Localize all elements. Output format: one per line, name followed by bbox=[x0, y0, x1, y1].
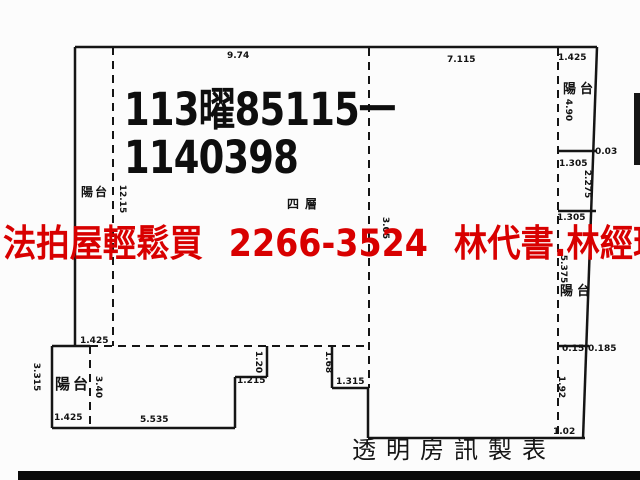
dim-top-width-left: 9.74 bbox=[227, 51, 249, 61]
dim-notch2-width: 1.315 bbox=[336, 377, 364, 387]
floor-level-label: 四層 bbox=[287, 195, 323, 212]
dim-right-offset-top: 0.03 bbox=[595, 147, 617, 157]
dim-bottom-width: 5.535 bbox=[140, 415, 168, 425]
room-bottom-left-balcony: 陽台 bbox=[55, 373, 91, 394]
dim-bl-inner-height: 3.40 bbox=[93, 376, 103, 398]
dim-right-balcony-width: 1.425 bbox=[558, 53, 586, 63]
dim-notch2-height: 1.68 bbox=[323, 351, 333, 373]
floor-plan-page: 9.74 7.115 1.425 4.90 0.03 1.305 2.275 1… bbox=[0, 0, 640, 480]
footer-credit: 透明房訊製表 bbox=[352, 430, 556, 465]
bottom-scan-bar bbox=[18, 471, 640, 480]
dim-bottom-right-width: 1.02 bbox=[553, 427, 575, 437]
scan-artifact bbox=[634, 93, 640, 165]
dim-right-balcony-height: 4.90 bbox=[563, 99, 573, 121]
room-top-right-balcony: 陽台 bbox=[563, 78, 597, 97]
room-left-balcony: 陽台 bbox=[81, 183, 109, 200]
dim-right-section2-width: 1.305 bbox=[559, 159, 587, 169]
dim-right-offset-mid-b: 0.185 bbox=[588, 344, 616, 354]
dim-left-strip-height: 12.15 bbox=[117, 185, 127, 213]
dim-bl-top-width: 1.425 bbox=[80, 336, 108, 346]
dim-bl-bottom-width: 1.425 bbox=[54, 413, 82, 423]
dim-bl-left-height: 3.315 bbox=[31, 363, 41, 391]
room-mid-right-balcony: 陽台 bbox=[560, 280, 594, 299]
case-number-line2: 1140398 bbox=[124, 134, 395, 182]
dim-notch1-height: 1.20 bbox=[253, 351, 263, 373]
case-number: 113曜85115一 1140398 bbox=[124, 86, 395, 182]
dim-top-width-right: 7.115 bbox=[447, 55, 475, 65]
dim-right-section4-height: 1.92 bbox=[556, 376, 566, 398]
dim-notch1-width: 1.215 bbox=[237, 376, 265, 386]
dim-right-section2-height: 2.275 bbox=[582, 170, 592, 198]
ad-banner: 法拍屋輕鬆買 2266-3524 林代書.林經理 bbox=[3, 213, 640, 267]
dim-right-offset-mid-a: 0.15 bbox=[562, 344, 584, 354]
case-number-line1: 113曜85115一 bbox=[124, 86, 395, 134]
